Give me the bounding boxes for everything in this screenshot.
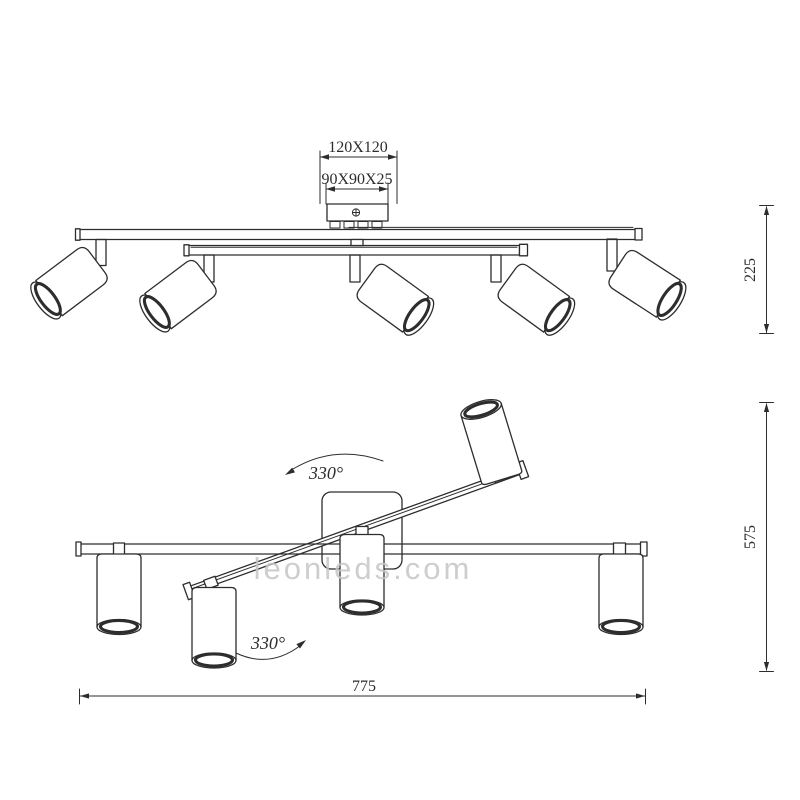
spotlight-head (495, 261, 580, 340)
top-view: 120X120 90X90X25 (25, 139, 773, 340)
arrowhead-down-icon (764, 324, 769, 333)
screw-icon (352, 209, 359, 216)
spotlight-stem (491, 255, 501, 282)
bar-pivot-connector (351, 240, 363, 246)
ceiling-bar-upper (76, 227, 643, 240)
dimension-label-canopy-outer: 120X120 (328, 139, 388, 156)
spotlight-stem (607, 239, 617, 271)
ceiling-bar-lower (184, 240, 528, 256)
spotlight-head (192, 588, 236, 669)
spotlight-fixture-drawing: 120X120 90X90X25 (0, 0, 800, 800)
spotlight-head (606, 248, 691, 325)
rotation-annotation-lower: 330° (236, 633, 306, 659)
bottom-view: 330° 330° 575 775 (76, 396, 774, 704)
rotation-angle-label: 330° (250, 633, 285, 653)
rotation-annotation-upper: 330° (285, 454, 383, 483)
spotlight-bracket (614, 543, 626, 555)
dimension-width-775: 775 (80, 678, 646, 704)
arrowhead-right-icon (636, 693, 645, 698)
dimension-height-575: 575 (742, 403, 774, 672)
dimension-label-canopy-inner: 90X90X25 (321, 171, 392, 188)
mounting-canopy (327, 204, 388, 228)
spotlight-bracket (114, 543, 125, 555)
spotlight-head (354, 261, 439, 340)
spotlight-head (134, 257, 219, 336)
spotlight-head (599, 554, 643, 635)
dimension-label-height-225: 225 (742, 258, 759, 282)
spotlight-head (97, 554, 141, 635)
canopy-inner-dimension: 90X90X25 (321, 171, 392, 204)
spotlight-head (25, 244, 110, 323)
arrowhead-down-icon (764, 662, 769, 671)
bar-end-cap (76, 542, 81, 556)
arrowhead-right-icon (388, 154, 397, 159)
arrowhead-up-icon (764, 206, 769, 215)
arrowhead-up-icon (764, 403, 769, 412)
watermark: leonleds.com (254, 551, 473, 586)
dimension-height-225: 225 (742, 206, 774, 334)
rotation-angle-label: 330° (308, 463, 343, 483)
dimension-label-height-575: 575 (742, 525, 759, 549)
spotlight-head-up (459, 396, 523, 486)
technical-drawing-page: 120X120 90X90X25 (0, 0, 800, 800)
arrowhead-left-icon (80, 693, 89, 698)
dimension-label-width-775: 775 (352, 678, 376, 695)
spotlight-stem (350, 255, 360, 282)
bar-end-cap (641, 542, 648, 556)
